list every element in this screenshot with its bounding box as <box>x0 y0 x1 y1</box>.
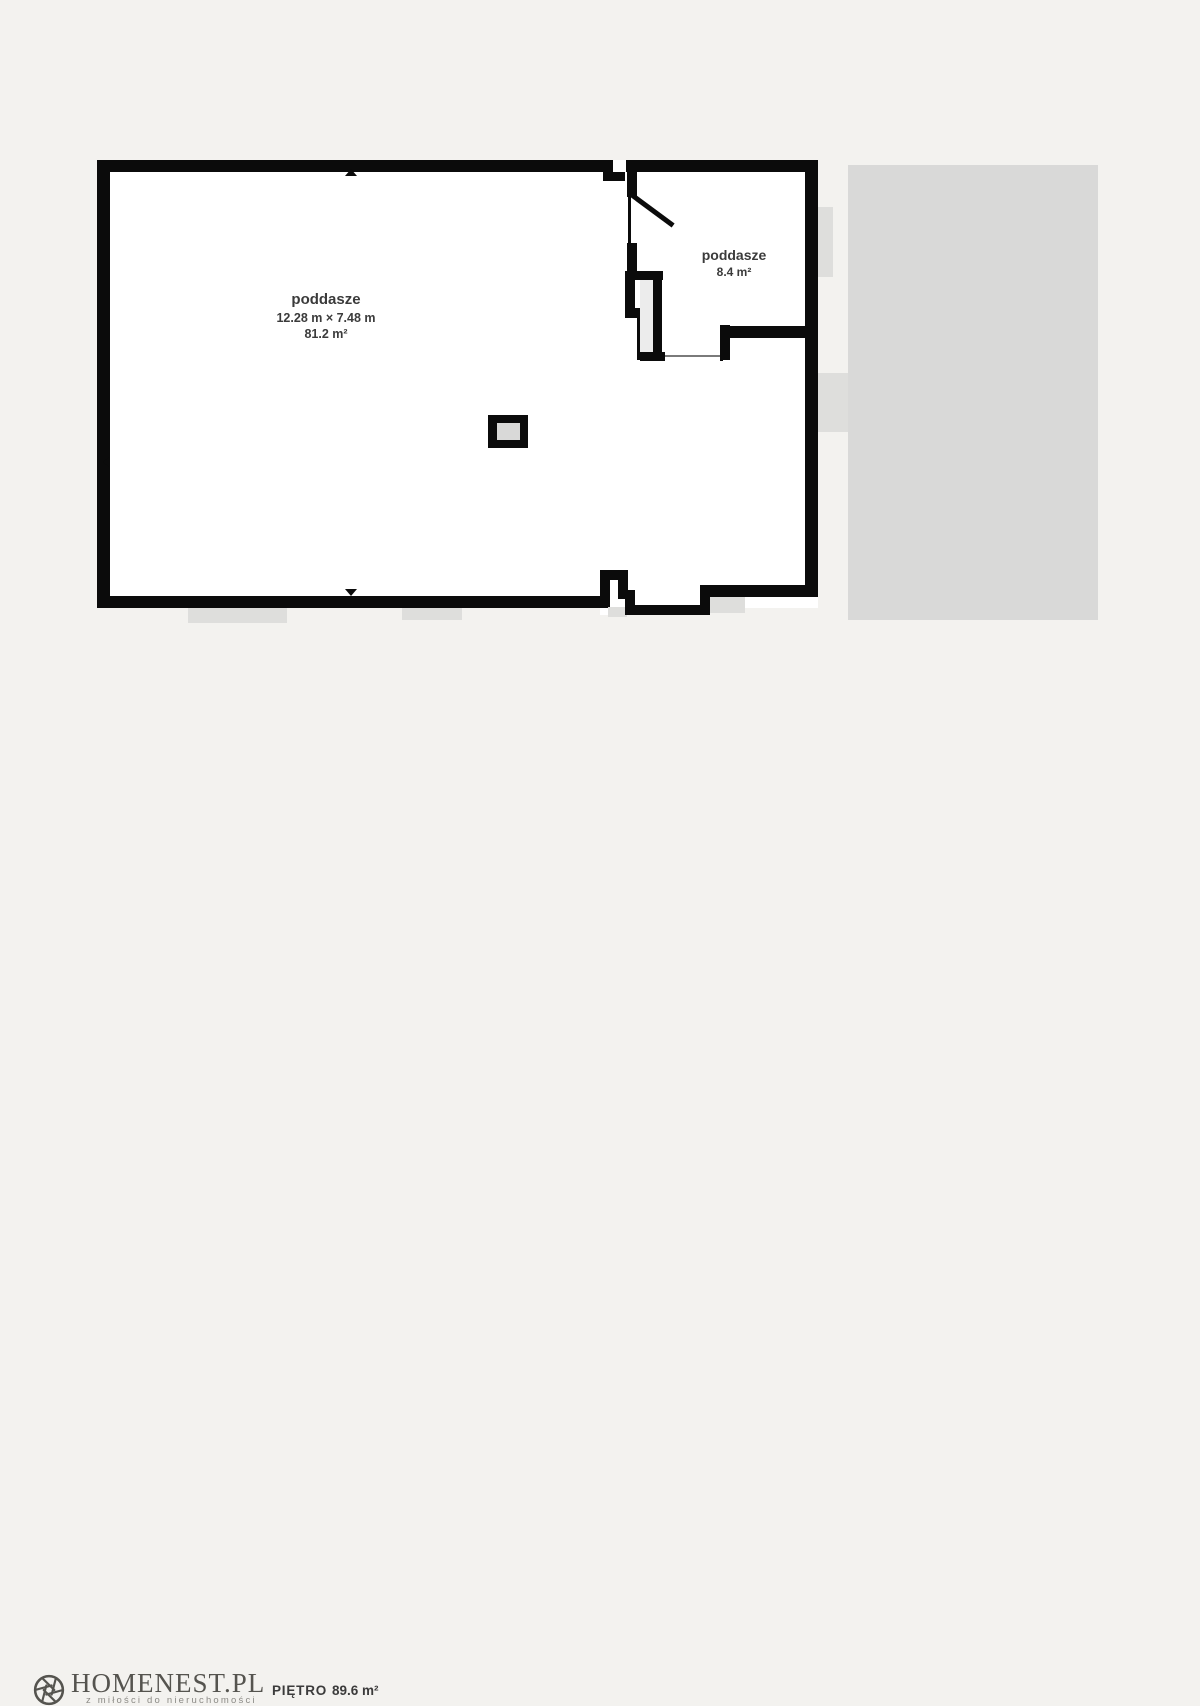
wall-top-tab <box>603 172 625 181</box>
wall-top-right <box>626 160 818 172</box>
roof-connector <box>818 373 848 432</box>
direction-arrow-up-icon <box>345 169 357 176</box>
floor-plan: poddasze 12.28 m × 7.48 m 81.2 m² poddas… <box>0 0 1200 900</box>
room-area: 81.2 m² <box>276 326 375 342</box>
wall-smallroom-bottom <box>720 326 812 338</box>
wall-smallroom-left-lower <box>627 243 637 271</box>
room-name: poddasze <box>702 247 767 265</box>
dormer-bottom-mid <box>402 608 462 620</box>
direction-arrow-down-icon <box>345 589 357 596</box>
chimney-fill <box>497 423 520 440</box>
room-label-main: poddasze 12.28 m × 7.48 m 81.2 m² <box>276 291 375 342</box>
floor-label: PIĘTRO <box>272 1683 327 1698</box>
dormer-bottom-right <box>706 597 745 613</box>
wall-shaft-right <box>652 280 662 360</box>
room-dimensions: 12.28 m × 7.48 m <box>276 310 375 326</box>
direction-arrow-left-icon <box>103 457 109 467</box>
room-name: poddasze <box>276 291 375 310</box>
wall-bump-top <box>600 570 628 580</box>
door-leaf <box>628 197 631 243</box>
wall-bottom-left <box>97 596 608 608</box>
room-area: 8.4 m² <box>702 265 767 281</box>
brand-tagline: z miłości do nieruchomości <box>86 1695 257 1706</box>
wall-right <box>805 160 818 597</box>
adjacent-roof-area <box>848 165 1098 620</box>
wall-bottom-mid <box>625 605 710 615</box>
window-alcove-line <box>665 355 720 357</box>
right-wall-attachment <box>818 207 833 277</box>
wall-bottom-right <box>700 585 818 597</box>
wall-left <box>97 160 110 608</box>
aperture-logo-icon <box>33 1674 65 1706</box>
dormer-bottom-left <box>188 608 287 623</box>
floor-area-value: 89.6 m² <box>332 1683 379 1698</box>
floor-area-main <box>97 160 818 608</box>
direction-arrow-right-icon <box>805 457 811 467</box>
shaft-fill <box>640 280 653 352</box>
room-label-small: poddasze 8.4 m² <box>702 247 767 280</box>
footer: HOMENEST.PL z miłości do nieruchomości P… <box>0 830 1200 900</box>
